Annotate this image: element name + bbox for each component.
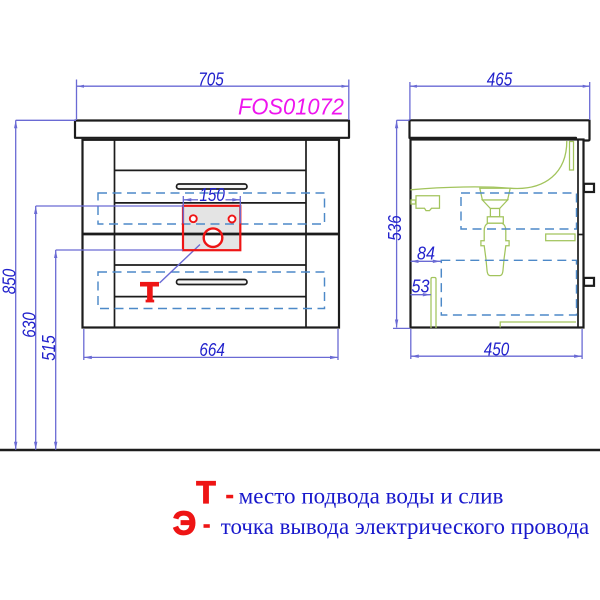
svg-text:150: 150 [199, 185, 225, 205]
svg-text:465: 465 [487, 70, 513, 90]
svg-text:850: 850 [0, 269, 19, 295]
svg-text:664: 664 [199, 340, 225, 360]
svg-text:630: 630 [19, 312, 39, 338]
svg-text:536: 536 [385, 214, 405, 240]
svg-text:точка вывода электрического пр: точка вывода электрического провода [221, 514, 590, 540]
svg-text:515: 515 [39, 334, 59, 360]
svg-text:Э: Э [173, 505, 196, 542]
svg-text:Т: Т [196, 474, 215, 510]
svg-text:53: 53 [412, 277, 430, 297]
svg-text:84: 84 [417, 244, 435, 264]
svg-text:место подвода воды и слив: место подвода воды и слив [239, 484, 504, 510]
svg-text:FOS01072: FOS01072 [238, 94, 344, 120]
svg-text:705: 705 [198, 70, 224, 90]
svg-text:450: 450 [484, 339, 510, 359]
